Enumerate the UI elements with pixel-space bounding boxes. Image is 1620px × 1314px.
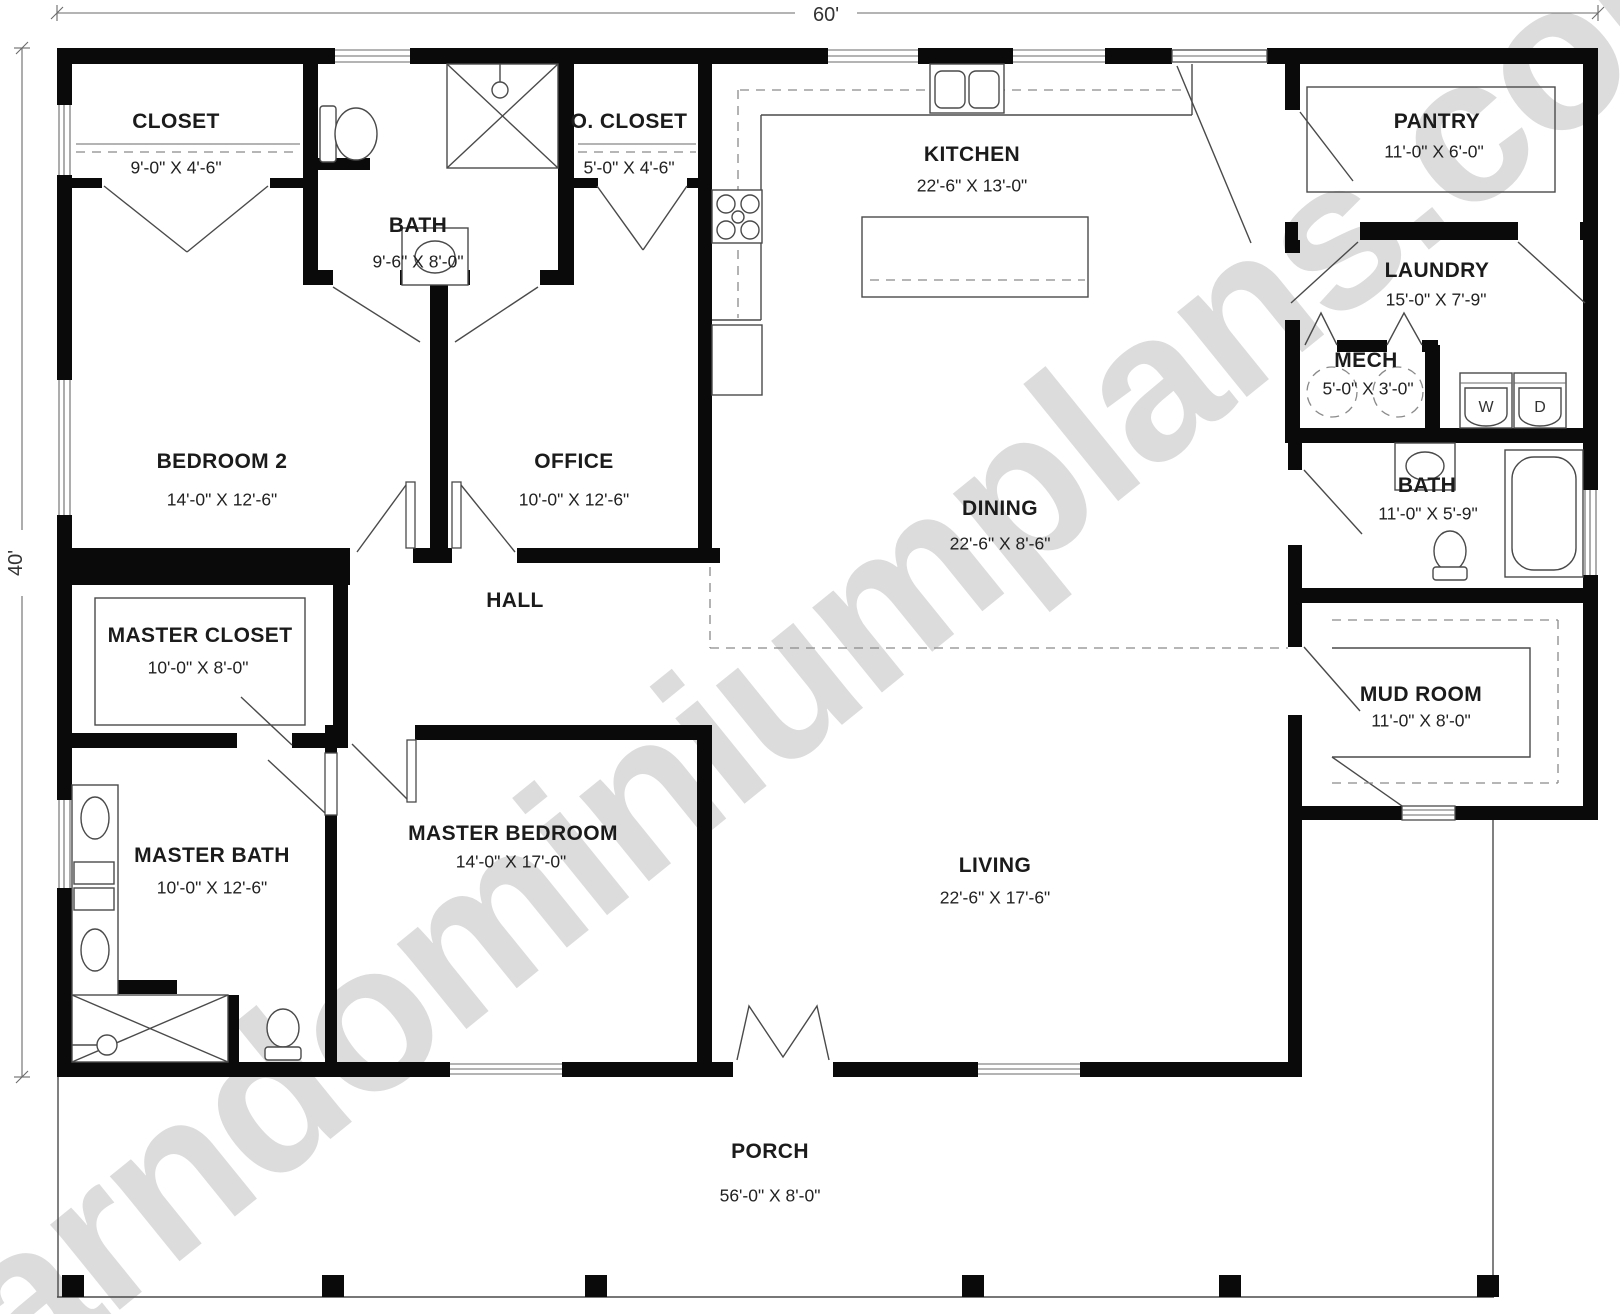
room-dims-master-closet: 10'-0" X 8'-0" [148, 658, 249, 679]
room-dims-bedroom-2: 14'-0" X 12'-6" [167, 490, 278, 511]
room-label-mud-room: MUD ROOM [1360, 683, 1482, 707]
room-label-hall: HALL [486, 589, 544, 613]
room-label-master-bedroom: MASTER BEDROOM [408, 822, 618, 846]
floor-plan-page: barndominiumplans.com 60' 40' [0, 0, 1620, 1314]
room-dims-office: 10'-0" X 12'-6" [519, 490, 630, 511]
room-label-closet: CLOSET [132, 110, 220, 134]
room-label-hall-bath: BATH [389, 214, 447, 238]
room-label-o-closet: O. CLOSET [571, 110, 688, 134]
room-label-living: LIVING [959, 854, 1031, 878]
room-dims-mech: 5'-0" X 3'-0" [1322, 379, 1413, 400]
room-dims-hall-bath: 9'-6" X 8'-0" [372, 252, 463, 273]
room-dims-master-bedroom: 14'-0" X 17'-0" [456, 852, 567, 873]
room-dims-mud-room: 11'-0" X 8'-0" [1371, 711, 1471, 732]
room-label-pantry: PANTRY [1394, 110, 1480, 134]
room-label-laundry: LAUNDRY [1385, 259, 1490, 283]
room-dims-porch: 56'-0" X 8'-0" [720, 1186, 821, 1207]
room-dims-pantry: 11'-0" X 6'-0" [1384, 142, 1484, 163]
room-label-kitchen: KITCHEN [924, 143, 1020, 167]
room-dims-kitchen: 22'-6" X 13'-0" [917, 176, 1028, 197]
room-label-master-closet: MASTER CLOSET [108, 624, 293, 648]
room-label-bedroom-2: BEDROOM 2 [157, 450, 288, 474]
room-dims-right-bath: 11'-0" X 5'-9" [1378, 504, 1478, 525]
room-label-office: OFFICE [534, 450, 613, 474]
room-dims-master-bath: 10'-0" X 12'-6" [157, 878, 268, 899]
room-dims-dining: 22'-6" X 8'-6" [950, 534, 1051, 555]
room-dims-o-closet: 5'-0" X 4'-6" [583, 158, 674, 179]
room-dims-living: 22'-6" X 17'-6" [940, 888, 1051, 909]
room-labels: CLOSET 9'-0" X 4'-6" BATH 9'-6" X 8'-0" … [0, 0, 1620, 1314]
room-dims-closet: 9'-0" X 4'-6" [130, 158, 221, 179]
room-label-mech: MECH [1334, 349, 1397, 373]
room-label-porch: PORCH [731, 1140, 809, 1164]
room-dims-laundry: 15'-0" X 7'-9" [1386, 290, 1487, 311]
room-label-dining: DINING [962, 497, 1038, 521]
room-label-right-bath: BATH [1398, 474, 1456, 498]
room-label-master-bath: MASTER BATH [134, 844, 290, 868]
